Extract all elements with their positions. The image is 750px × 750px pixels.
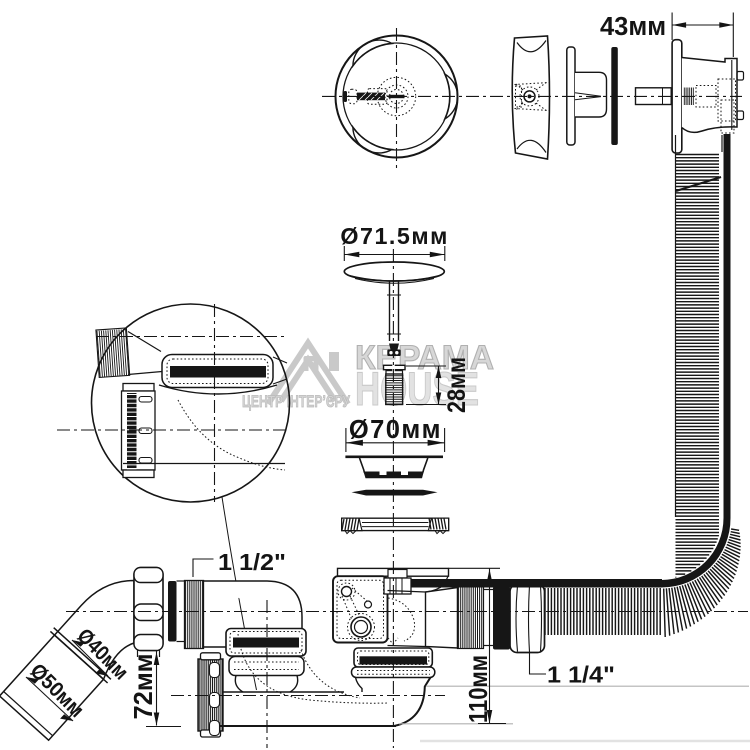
svg-text:Ø70мм: Ø70мм xyxy=(349,416,442,444)
svg-text:Ø71.5мм: Ø71.5мм xyxy=(340,223,448,249)
svg-text:1 1/2": 1 1/2" xyxy=(218,549,286,575)
svg-text:72мм: 72мм xyxy=(128,654,158,720)
svg-text:28мм: 28мм xyxy=(443,357,471,413)
svg-text:43мм: 43мм xyxy=(600,13,666,41)
svg-text:ЦЕНТР ІНТЕР’ЄРУ: ЦЕНТР ІНТЕР’ЄРУ xyxy=(242,392,350,411)
svg-text:110мм: 110мм xyxy=(463,655,493,723)
svg-text:1 1/4": 1 1/4" xyxy=(547,662,615,688)
